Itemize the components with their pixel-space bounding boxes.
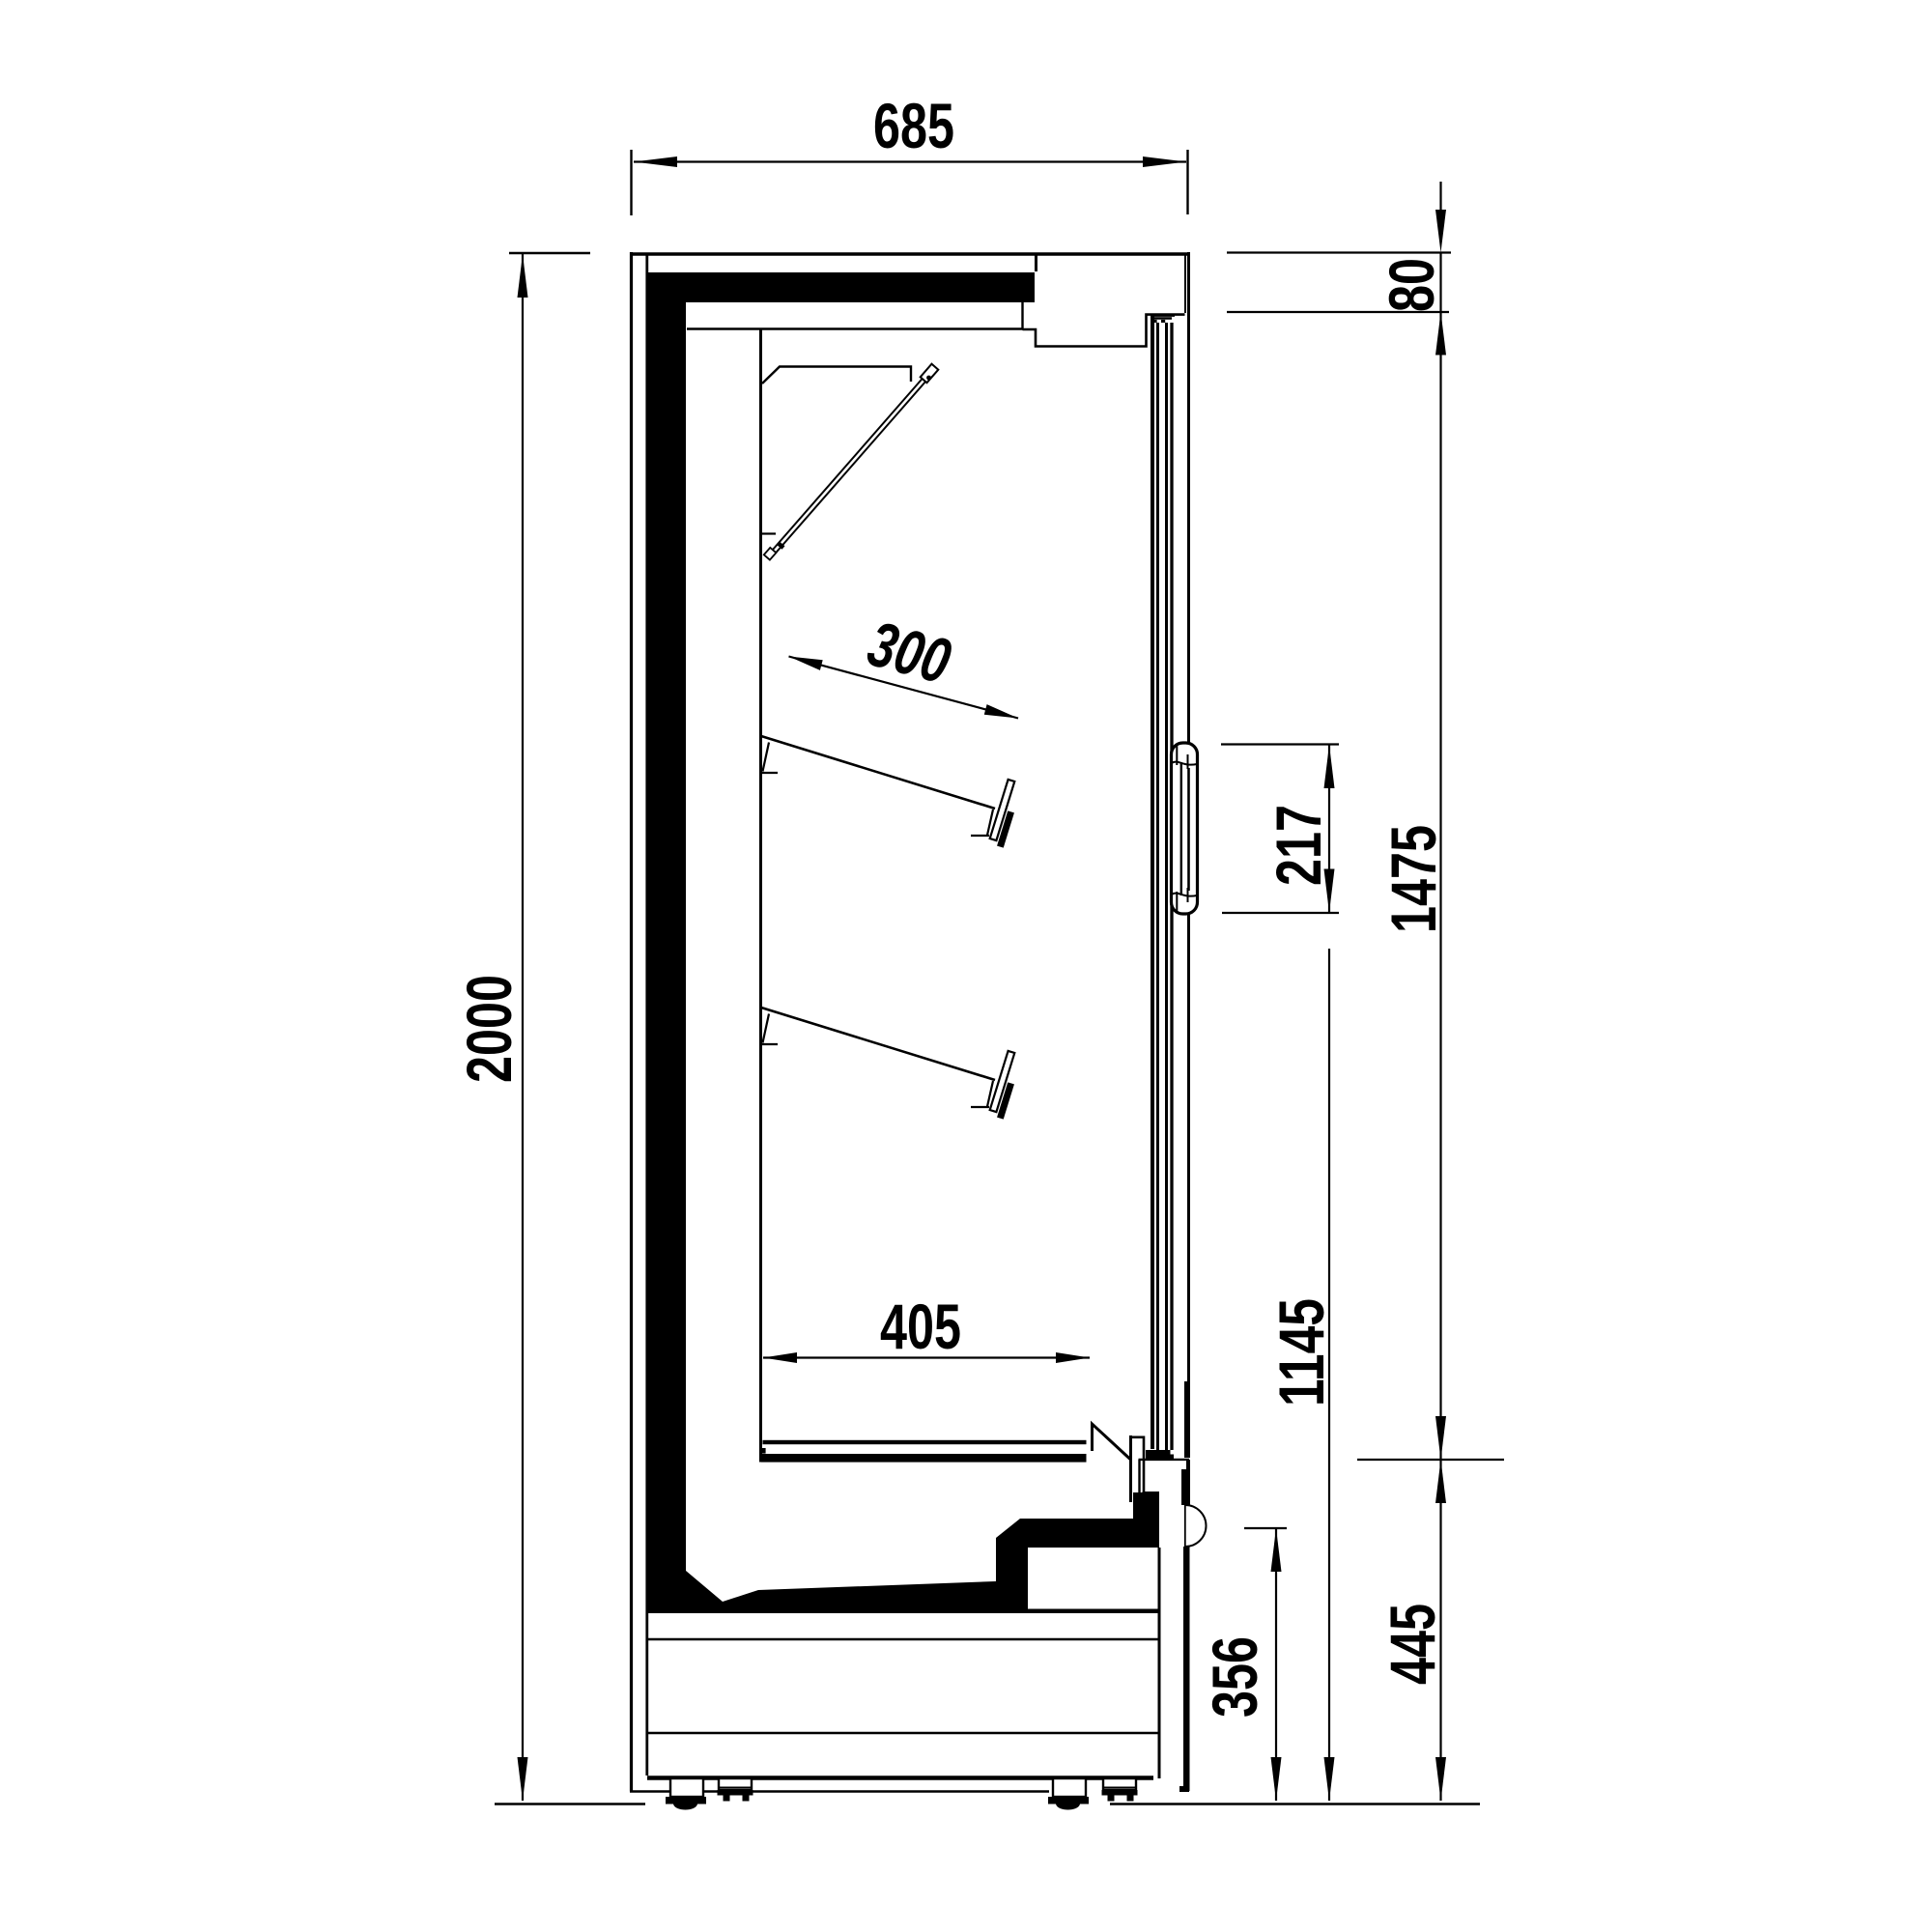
svg-text:1145: 1145 xyxy=(1265,1298,1337,1406)
svg-text:685: 685 xyxy=(873,90,954,161)
svg-text:1475: 1475 xyxy=(1378,825,1449,933)
svg-text:445: 445 xyxy=(1377,1604,1448,1685)
svg-text:2000: 2000 xyxy=(453,975,525,1083)
svg-text:217: 217 xyxy=(1263,805,1334,886)
svg-text:80: 80 xyxy=(1376,258,1447,312)
svg-text:405: 405 xyxy=(880,1291,961,1362)
svg-text:356: 356 xyxy=(1199,1636,1270,1718)
